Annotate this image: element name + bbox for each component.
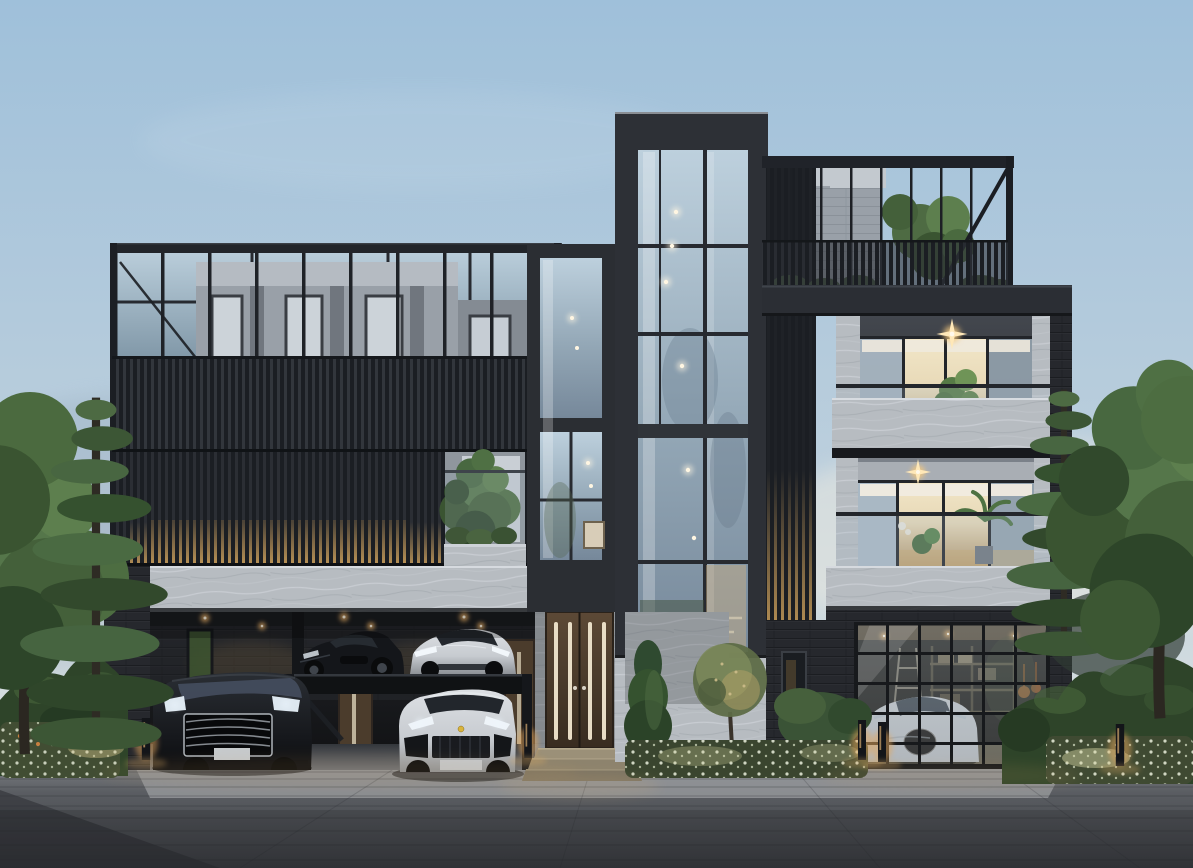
carport-ceiling-shadow: [150, 612, 535, 638]
left-block: [104, 243, 642, 782]
fascia-slab: [762, 285, 1072, 316]
entry-door: [546, 612, 613, 748]
terrace-planter: [439, 449, 526, 576]
balcony-second-floor: [836, 458, 1056, 570]
balcony3-parapet: [832, 398, 1062, 452]
balcony-third-floor: [832, 316, 1062, 458]
entry-glass-column: [527, 244, 615, 612]
architectural-render: [0, 0, 1193, 868]
bottom-vignette: [0, 810, 1193, 868]
rooftop-slat-fence: [112, 356, 556, 452]
